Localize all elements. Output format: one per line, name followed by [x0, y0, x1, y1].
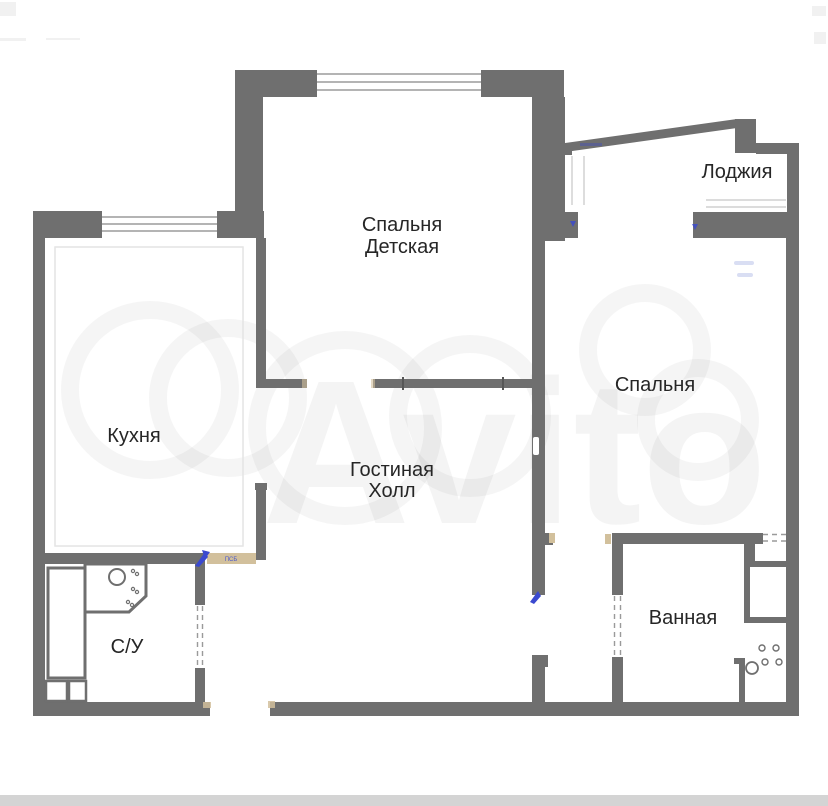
- wall-central-lower-stub: [532, 655, 548, 667]
- room-label-wc: С/У: [111, 636, 144, 658]
- corner-smudge: [0, 2, 16, 16]
- bath-counter-stub: [734, 658, 745, 664]
- wc-counter-hole: [135, 590, 138, 593]
- kitchen-floor-inset: [55, 247, 243, 546]
- wall-kitchen-east-lower: [256, 483, 266, 560]
- wall-left-outer: [33, 211, 45, 714]
- kitchen-door-sill-label: ПСБ: [225, 557, 238, 563]
- wall-kitchen-bottom: [45, 553, 197, 564]
- wall-bathroom-west-upper: [612, 544, 623, 595]
- entrance-sill-mark: [203, 702, 211, 708]
- floorplan-canvas: Avito: [0, 0, 828, 806]
- wc-counter-hole: [126, 600, 129, 603]
- faint-note-bedroom: [737, 273, 753, 277]
- wc-counter-hole: [135, 572, 138, 575]
- bath-sink: [746, 662, 758, 674]
- bath-shaft-wall: [744, 543, 755, 563]
- wall-bathroom-top: [612, 533, 763, 544]
- corner-smudge: [0, 38, 26, 41]
- wall-right-outer: [786, 238, 799, 716]
- wc-appliance: [69, 681, 86, 701]
- wall-loggia-right: [787, 148, 799, 213]
- wall-bathroom-west-lower: [612, 657, 623, 702]
- wall-loggia-bottom: [693, 212, 799, 238]
- windows: [102, 70, 786, 238]
- bedroom-door-sill-mark: [605, 534, 611, 544]
- room-label-loggia: Лоджия: [702, 161, 773, 183]
- bathroom-fixtures: [746, 645, 782, 674]
- wc-counter-hole: [131, 587, 134, 590]
- wall-children-top-right: [481, 70, 564, 97]
- wall-loggia-peak: [735, 119, 756, 153]
- kitchen-window: [102, 211, 217, 238]
- room-label-children-bedroom-line1: Спальня: [362, 214, 442, 236]
- wall-central-lower: [532, 667, 545, 702]
- avito-watermark: Avito: [70, 293, 767, 567]
- room-label-bedroom: Спальня: [615, 374, 695, 396]
- bath-counter-hole: [776, 659, 782, 665]
- wall-divider-stub-west: [256, 379, 307, 388]
- bath-counter-hole: [759, 645, 765, 651]
- room-label-bathroom: Ванная: [649, 607, 718, 629]
- corner-smudge: [814, 32, 826, 44]
- children-door-sill-mark: [302, 379, 307, 388]
- central-wall-handle: [533, 437, 539, 455]
- wall-loggia-bottom-stub: [558, 212, 578, 238]
- wall-children-divider: [373, 379, 537, 388]
- wc-appliance: [46, 681, 67, 701]
- room-label-kitchen: Кухня: [107, 425, 161, 447]
- wall-wc-east-lower: [195, 668, 205, 702]
- divider-tick: [502, 377, 504, 390]
- wc-fixtures: [46, 564, 146, 701]
- wc-cabinet: [48, 568, 85, 678]
- children-door-sill-mark: [371, 379, 375, 388]
- wc-counter-hole: [130, 603, 133, 606]
- bath-shaft-wall: [744, 563, 750, 620]
- bath-counter-hole: [762, 659, 768, 665]
- scan-artifacts: [0, 2, 826, 44]
- bath-shaft-shelf: [744, 617, 786, 623]
- bath-counter-hole: [773, 645, 779, 651]
- wall-children-top-left: [235, 70, 317, 97]
- bath-counter-wall: [739, 658, 745, 702]
- wall-bottom-right: [270, 702, 799, 716]
- corner-smudge: [812, 6, 826, 16]
- divider-tick: [402, 377, 404, 390]
- corner-smudge: [46, 38, 80, 40]
- wc-sink: [109, 569, 125, 585]
- room-label-living-line1: Гостиная: [350, 459, 434, 481]
- room-label-living-line2: Холл: [368, 480, 415, 502]
- bottom-edge-strip: [0, 795, 828, 806]
- bath-shaft-shelf: [744, 561, 786, 567]
- faint-note-bedroom: [734, 261, 754, 265]
- blue-dash-loggia-slant: [580, 143, 602, 146]
- entrance-sill-mark: [268, 701, 275, 708]
- watermark-text: Avito: [262, 338, 767, 567]
- wc-counter-hole: [131, 569, 134, 572]
- bedroom-door-sill-mark: [549, 533, 555, 543]
- wall-kitchen-east-upper: [256, 238, 266, 388]
- room-label-children-bedroom-line2: Детская: [365, 236, 439, 258]
- wall-loggia-slant: [558, 119, 737, 153]
- children-bedroom-window: [317, 70, 481, 97]
- wall-central: [532, 240, 545, 595]
- wall-bottom-left: [33, 702, 210, 716]
- wall-kitchen-top-left: [33, 211, 102, 238]
